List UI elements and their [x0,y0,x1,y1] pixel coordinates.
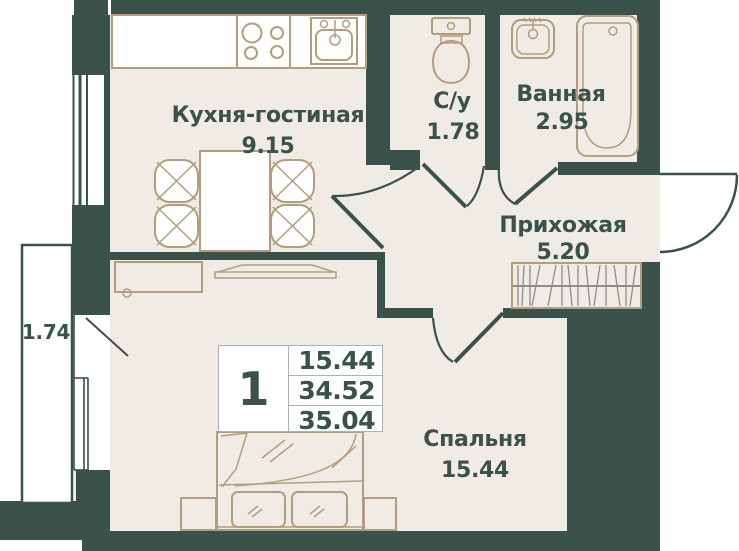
room-area-bedroom: 15.44 [441,460,509,482]
summary-total-area: 35.04 [289,406,382,435]
stove-icon [237,15,290,68]
summary-area-without-balcony: 34.52 [289,376,382,406]
entry-door-icon [660,174,737,252]
balcony-icon [22,245,72,503]
summary-table: 1 15.44 34.52 35.04 [218,345,383,432]
dining-table-icon [200,151,270,251]
chair-icon [271,205,314,247]
room-area-balcony: 1.74 [22,322,70,342]
summary-living-area: 15.44 [289,346,382,376]
room-label-hallway: Прихожая [499,215,626,237]
room-label-bathroom: Ванная [516,84,605,106]
chair-icon [155,205,198,247]
room-area-kitchen-living: 9.15 [241,136,294,158]
room-label-kitchen-living: Кухня-гостиная [172,105,365,127]
kitchen-sink-icon [311,18,357,64]
rooms-count: 1 [219,346,289,431]
chair-icon [271,160,314,202]
room-label-bedroom: Спальня [423,429,526,451]
wall-joint [108,0,111,13]
floorplan-svg [0,0,739,551]
room-area-hallway: 5.20 [536,242,589,264]
room-label-wc: С/у [433,91,471,113]
chair-icon [155,160,198,202]
room-area-bathroom: 2.95 [535,112,588,134]
room-area-wc: 1.78 [426,122,479,144]
floorplan: Кухня-гостиная 9.15 С/у 1.78 Ванная 2.95… [0,0,739,551]
summary-areas: 15.44 34.52 35.04 [289,346,382,431]
